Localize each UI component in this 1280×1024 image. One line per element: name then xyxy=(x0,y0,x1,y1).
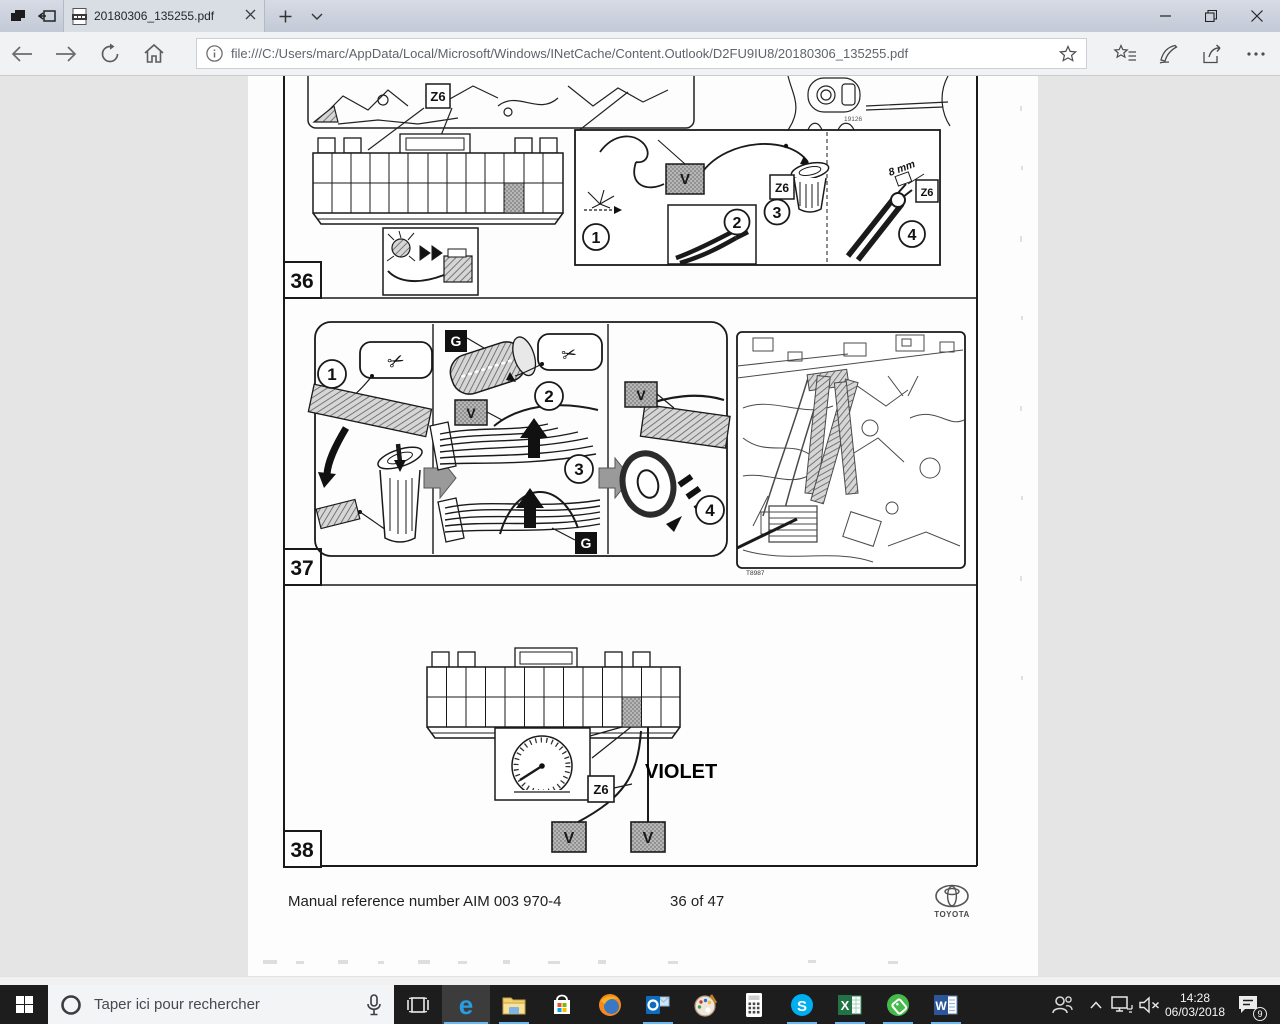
paint-icon xyxy=(693,992,719,1018)
close-window-button[interactable] xyxy=(1234,0,1280,32)
svg-text:2: 2 xyxy=(733,215,742,232)
label-v: V xyxy=(643,830,654,847)
task-view-button[interactable] xyxy=(394,985,442,1024)
taskbar-app-file-explorer[interactable] xyxy=(490,985,538,1024)
pen-icon xyxy=(1157,44,1179,64)
fig37-step4: 4 xyxy=(705,501,715,520)
ethernet-icon xyxy=(1111,996,1133,1014)
svg-text:S: S xyxy=(797,998,807,1015)
forward-icon xyxy=(54,45,78,63)
section-36-number: 36 xyxy=(290,270,313,293)
section-38-number: 38 xyxy=(290,839,314,862)
back-button[interactable] xyxy=(2,32,42,75)
taskbar-app-word[interactable]: W xyxy=(922,985,970,1024)
clock-date: 06/03/2018 xyxy=(1164,1005,1226,1019)
fig38-connector-strip xyxy=(427,648,680,738)
footer-reference: Manual reference number AIM 003 970-4 xyxy=(288,893,562,910)
toyota-logo: TOYOTA xyxy=(934,886,970,920)
hub-button[interactable] xyxy=(1105,32,1145,75)
svg-text:4: 4 xyxy=(908,227,917,244)
label-g: G xyxy=(451,333,462,349)
taskbar-app-microsoft-store[interactable] xyxy=(538,985,586,1024)
minimize-icon xyxy=(1160,15,1171,17)
fig36-inset xyxy=(383,228,478,295)
taskbar-app-firefox[interactable] xyxy=(586,985,634,1024)
minimize-button[interactable] xyxy=(1142,0,1188,32)
next-page-ghost-text xyxy=(263,960,898,964)
web-note-button[interactable] xyxy=(1148,32,1188,75)
volume-tray-icon[interactable] xyxy=(1136,985,1164,1024)
browser-window: 20180306_135255.pdf xyxy=(0,0,1280,1024)
fig37-step1: 1 xyxy=(327,365,336,384)
firefox-icon xyxy=(597,992,623,1018)
label-v: V xyxy=(636,387,646,403)
violet-annotation: VIOLET xyxy=(645,761,717,783)
restore-button[interactable] xyxy=(1188,0,1234,32)
fig37-code: T8987 xyxy=(746,570,765,577)
tray-expand-button[interactable] xyxy=(1084,985,1108,1024)
svg-text:e: e xyxy=(459,991,473,1019)
action-center-button[interactable]: 9 xyxy=(1226,985,1270,1024)
forward-button[interactable] xyxy=(46,32,86,75)
start-button[interactable] xyxy=(0,985,48,1024)
manual-page-drawing: Z6 19126 xyxy=(248,76,1038,976)
new-tab-button[interactable] xyxy=(270,0,300,32)
label-z6: Z6 xyxy=(593,782,608,797)
tab-close-button[interactable] xyxy=(245,7,256,25)
pdf-page: Z6 19126 xyxy=(248,76,1038,976)
fig37-step3: 3 xyxy=(574,460,583,479)
navigation-bar: file:///C:/Users/marc/AppData/Local/Micr… xyxy=(0,32,1280,76)
info-icon[interactable] xyxy=(206,45,223,62)
tab-list-button[interactable] xyxy=(302,0,332,32)
edge-icon: e xyxy=(452,991,480,1019)
share-icon xyxy=(1202,44,1225,64)
section-37-number: 37 xyxy=(290,557,313,580)
microphone-icon[interactable] xyxy=(366,994,382,1016)
volume-muted-icon xyxy=(1139,996,1161,1014)
people-button[interactable] xyxy=(1040,985,1084,1024)
scan-artifacts xyxy=(1020,106,1023,680)
close-icon xyxy=(245,9,256,20)
home-button[interactable] xyxy=(134,32,174,75)
taskbar-app-calculator[interactable] xyxy=(730,985,778,1024)
back-icon xyxy=(10,45,34,63)
outlook-icon xyxy=(645,993,671,1017)
refresh-button[interactable] xyxy=(90,32,130,75)
close-icon xyxy=(1251,10,1263,22)
set-tabs-aside-icon xyxy=(9,7,27,25)
tab-title: 20180306_135255.pdf xyxy=(94,9,238,23)
taskbar: Taper ici pour rechercher e xyxy=(0,985,1280,1024)
pdf-viewer: Z6 19126 xyxy=(0,76,1280,976)
fig36-connector-strip xyxy=(313,134,563,224)
restore-icon xyxy=(1205,10,1217,22)
fig36-code: 19126 xyxy=(844,116,862,123)
hub-favorites-icon xyxy=(1113,44,1137,63)
windows-logo-icon xyxy=(16,996,33,1013)
network-tray-icon[interactable] xyxy=(1108,985,1136,1024)
excel-icon: X xyxy=(837,993,863,1017)
fig37-photo-panel xyxy=(737,332,965,568)
calculator-icon xyxy=(743,992,765,1018)
label-v: V xyxy=(466,405,476,421)
label-z6: Z6 xyxy=(775,181,789,195)
pdf-file-icon xyxy=(72,8,87,25)
word-icon: W xyxy=(933,993,959,1017)
svg-text:1: 1 xyxy=(592,230,601,247)
horizontal-scrollbar[interactable] xyxy=(0,976,1280,985)
plus-icon xyxy=(279,10,292,23)
refresh-icon xyxy=(99,43,121,65)
set-tabs-aside-button[interactable] xyxy=(4,0,32,32)
label-v: V xyxy=(680,171,690,188)
taskbar-app-excel[interactable]: X xyxy=(826,985,874,1024)
tabs-preview-icon xyxy=(38,7,58,25)
taskbar-app-green-tag-app[interactable] xyxy=(874,985,922,1024)
task-view-icon xyxy=(406,995,430,1015)
notification-badge: 9 xyxy=(1253,1007,1267,1021)
svg-text:X: X xyxy=(841,998,850,1013)
address-bar[interactable]: file:///C:/Users/marc/AppData/Local/Micr… xyxy=(196,38,1087,69)
taskbar-app-outlook[interactable] xyxy=(634,985,682,1024)
taskbar-search-box[interactable]: Taper ici pour rechercher xyxy=(48,985,394,1024)
share-button[interactable] xyxy=(1193,32,1233,75)
toyota-wordmark: TOYOTA xyxy=(934,910,970,919)
microsoft-store-icon xyxy=(549,992,575,1018)
more-button[interactable] xyxy=(1236,32,1276,75)
file-explorer-icon xyxy=(501,994,527,1016)
footer-page-indicator: 36 of 47 xyxy=(670,893,724,910)
label-z6: Z6 xyxy=(430,89,445,104)
fig36-tools-panel xyxy=(575,130,940,265)
tabs-set-aside-button[interactable] xyxy=(34,0,62,32)
label-g: G xyxy=(581,535,592,551)
chevron-down-icon xyxy=(311,13,323,20)
clock-time: 14:28 xyxy=(1164,991,1226,1005)
chevron-up-icon xyxy=(1090,1001,1102,1009)
taskbar-app-skype[interactable]: S xyxy=(778,985,826,1024)
fig37-panel-2: ✂ xyxy=(430,334,602,542)
people-icon xyxy=(1050,994,1074,1016)
url-text: file:///C:/Users/marc/AppData/Local/Micr… xyxy=(231,46,1051,61)
label-v: V xyxy=(564,830,575,847)
ellipsis-icon xyxy=(1247,52,1265,56)
cortana-icon xyxy=(60,994,82,1016)
taskbar-app-paint[interactable] xyxy=(682,985,730,1024)
add-favorite-star-icon[interactable] xyxy=(1059,45,1077,62)
titlebar: 20180306_135255.pdf xyxy=(0,0,1280,32)
svg-text:W: W xyxy=(935,999,947,1013)
skype-icon: S xyxy=(789,992,815,1018)
taskbar-app-edge[interactable]: e xyxy=(442,985,490,1024)
svg-text:3: 3 xyxy=(773,205,782,222)
browser-tab[interactable]: 20180306_135255.pdf xyxy=(63,0,265,32)
taskbar-clock[interactable]: 14:28 06/03/2018 xyxy=(1164,985,1226,1024)
home-icon xyxy=(143,43,165,64)
green-tag-icon xyxy=(885,992,911,1018)
fig38-gauge xyxy=(495,728,590,800)
fig37-step2: 2 xyxy=(544,387,553,406)
search-placeholder: Taper ici pour rechercher xyxy=(94,996,354,1013)
label-z6: Z6 xyxy=(921,187,934,199)
